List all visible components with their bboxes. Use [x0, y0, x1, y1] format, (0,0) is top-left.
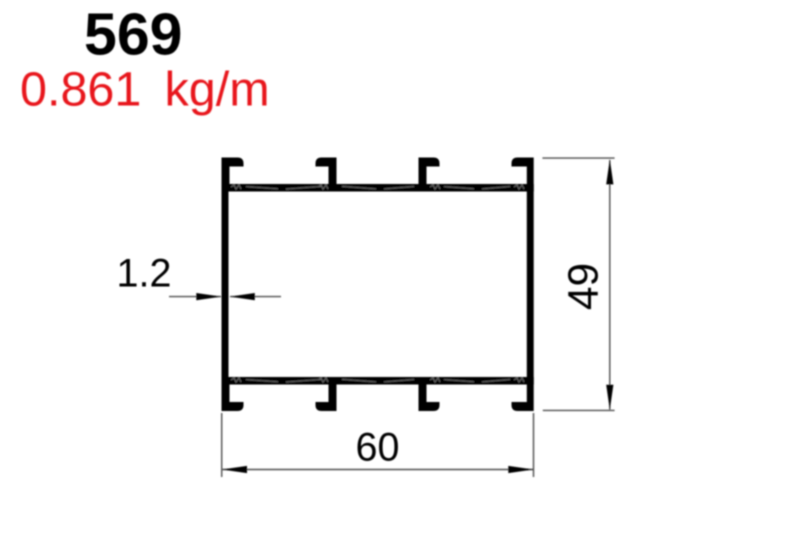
svg-text:49: 49	[561, 263, 608, 310]
svg-text:kg/m: kg/m	[165, 63, 270, 117]
svg-text:0.861: 0.861	[20, 63, 141, 117]
svg-text:60: 60	[356, 426, 400, 470]
svg-text:1.2: 1.2	[117, 252, 172, 296]
svg-text:569: 569	[84, 2, 182, 68]
